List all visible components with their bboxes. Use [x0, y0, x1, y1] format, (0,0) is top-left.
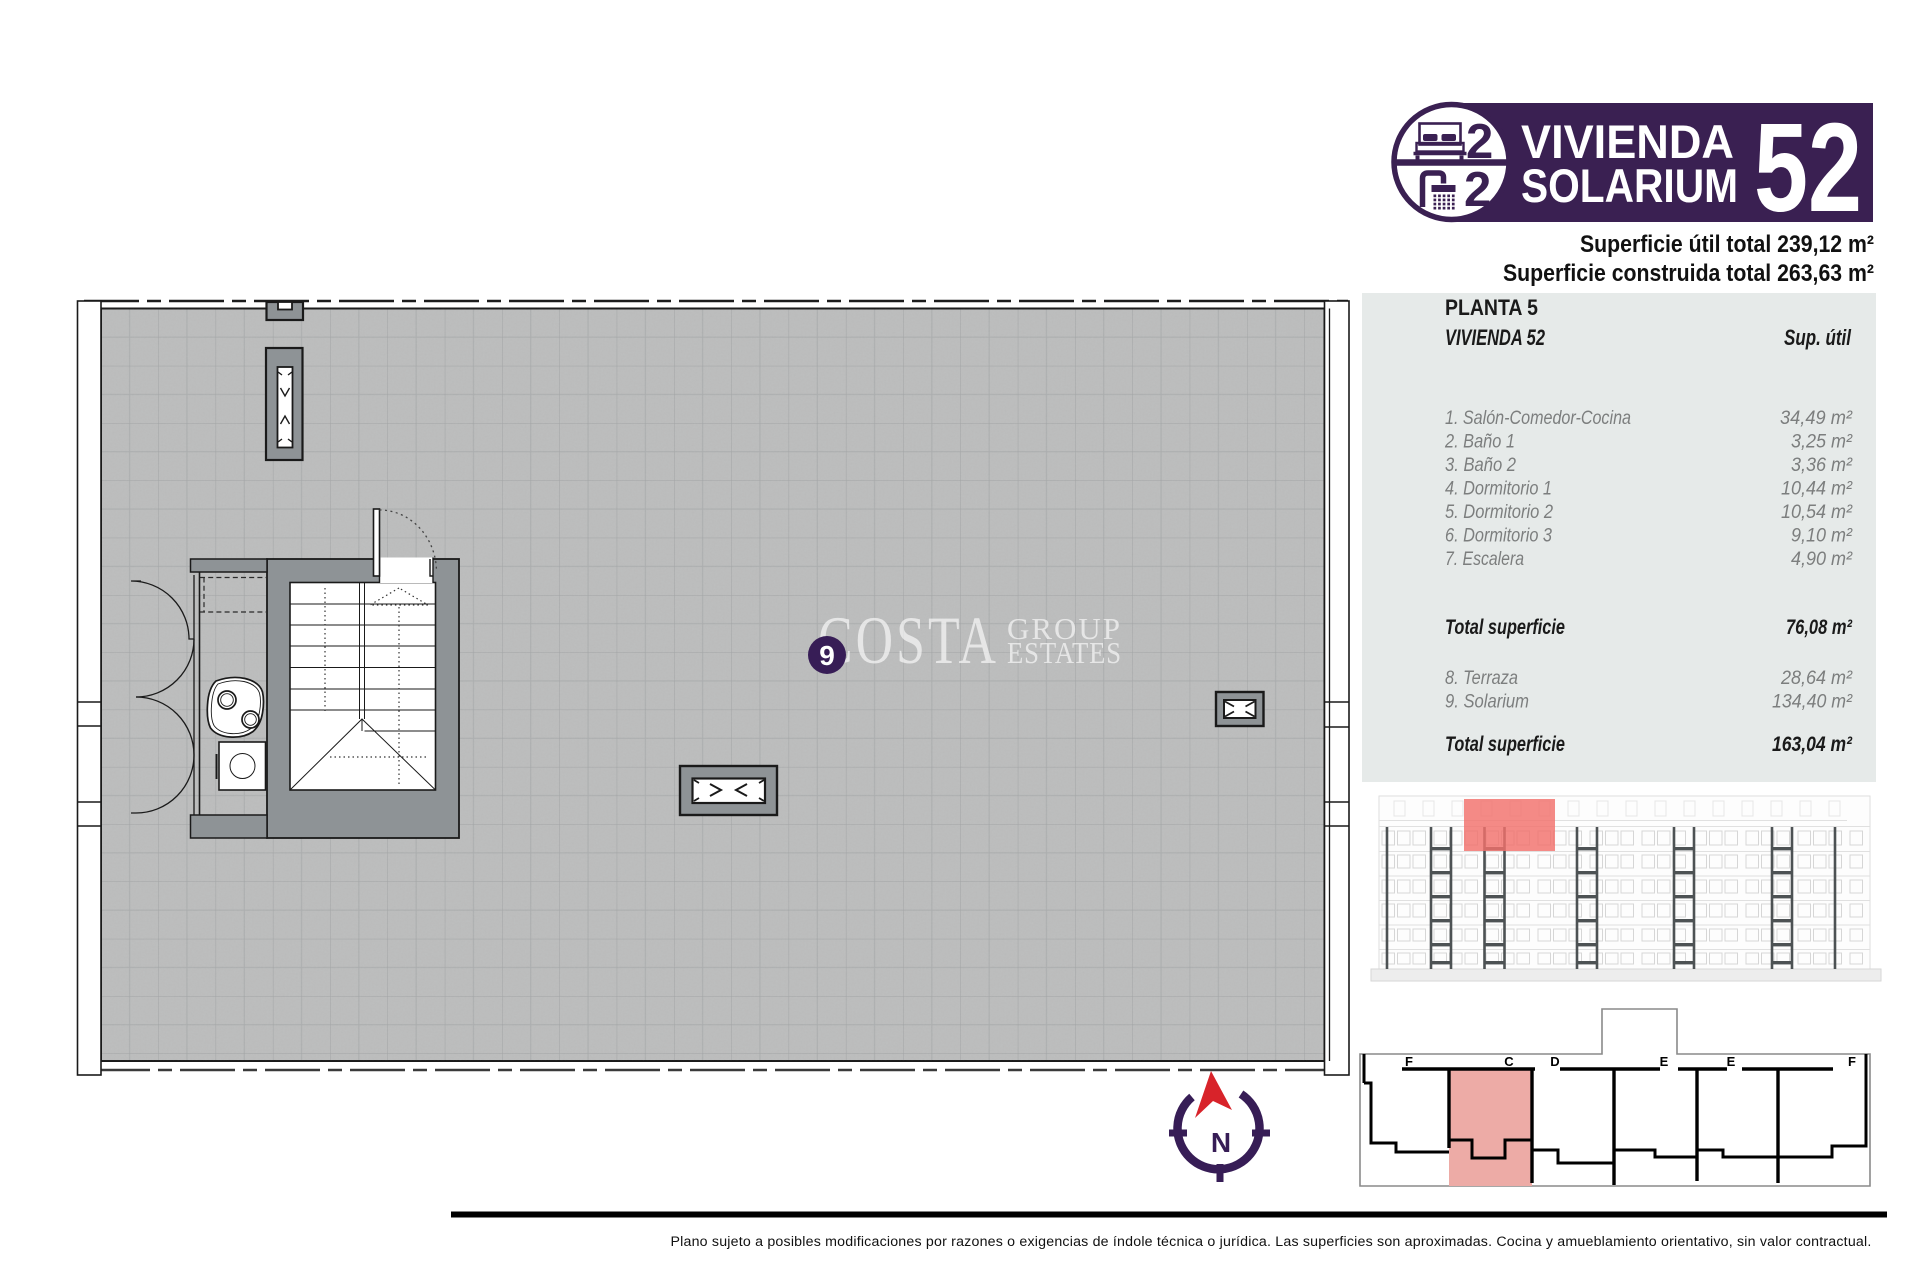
svg-text:8. Terraza: 8. Terraza	[1445, 667, 1518, 689]
svg-text:Total superficie: Total superficie	[1445, 733, 1565, 756]
svg-text:163,04 m²: 163,04 m²	[1772, 733, 1853, 756]
svg-text:28,64 m²: 28,64 m²	[1780, 667, 1853, 689]
svg-text:C: C	[1504, 1054, 1514, 1069]
svg-text:134,40 m²: 134,40 m²	[1772, 691, 1853, 713]
svg-text:2. Baño 1: 2. Baño 1	[1444, 431, 1515, 453]
svg-text:F: F	[1405, 1054, 1413, 1069]
svg-text:Sup. útil: Sup. útil	[1784, 325, 1852, 350]
svg-text:9,10 m²: 9,10 m²	[1791, 525, 1853, 547]
svg-text:9. Solarium: 9. Solarium	[1445, 691, 1529, 713]
svg-text:10,54 m²: 10,54 m²	[1781, 501, 1853, 523]
svg-text:34,49 m²: 34,49 m²	[1780, 407, 1853, 429]
svg-text:2: 2	[1464, 163, 1491, 217]
svg-text:Total superficie: Total superficie	[1445, 616, 1565, 639]
svg-text:Plano sujeto a posibles modifi: Plano sujeto a posibles modificaciones p…	[670, 1234, 1871, 1250]
svg-text:COSTA: COSTA	[818, 602, 999, 678]
svg-text:7. Escalera: 7. Escalera	[1445, 548, 1524, 570]
svg-text:4,90 m²: 4,90 m²	[1791, 548, 1853, 570]
svg-text:F: F	[1848, 1054, 1856, 1069]
svg-text:4. Dormitorio 1: 4. Dormitorio 1	[1445, 478, 1552, 500]
svg-text:PLANTA 5: PLANTA 5	[1445, 295, 1538, 320]
svg-text:3,25 m²: 3,25 m²	[1791, 431, 1853, 453]
svg-text:3,36 m²: 3,36 m²	[1791, 454, 1853, 476]
svg-text:1. Salón-Comedor-Cocina: 1. Salón-Comedor-Cocina	[1445, 407, 1631, 429]
svg-text:VIVIENDA 52: VIVIENDA 52	[1445, 325, 1546, 350]
svg-text:6. Dormitorio 3: 6. Dormitorio 3	[1445, 525, 1552, 547]
svg-text:N: N	[1211, 1127, 1231, 1158]
svg-text:SOLARIUM: SOLARIUM	[1521, 159, 1738, 212]
svg-text:3. Baño 2: 3. Baño 2	[1445, 454, 1516, 476]
svg-text:9: 9	[819, 640, 835, 671]
svg-text:Superficie útil total 239,12 m: Superficie útil total 239,12 m²	[1580, 231, 1874, 258]
svg-text:76,08 m²: 76,08 m²	[1786, 616, 1853, 639]
svg-text:ESTATES: ESTATES	[1007, 635, 1122, 670]
svg-text:E: E	[1727, 1054, 1736, 1069]
svg-text:52: 52	[1754, 97, 1862, 238]
svg-text:5. Dormitorio 2: 5. Dormitorio 2	[1445, 501, 1553, 523]
svg-text:D: D	[1550, 1054, 1559, 1069]
svg-text:E: E	[1660, 1054, 1669, 1069]
svg-text:10,44 m²: 10,44 m²	[1781, 478, 1853, 500]
svg-text:Superficie construida total 26: Superficie construida total 263,63 m²	[1503, 260, 1874, 287]
